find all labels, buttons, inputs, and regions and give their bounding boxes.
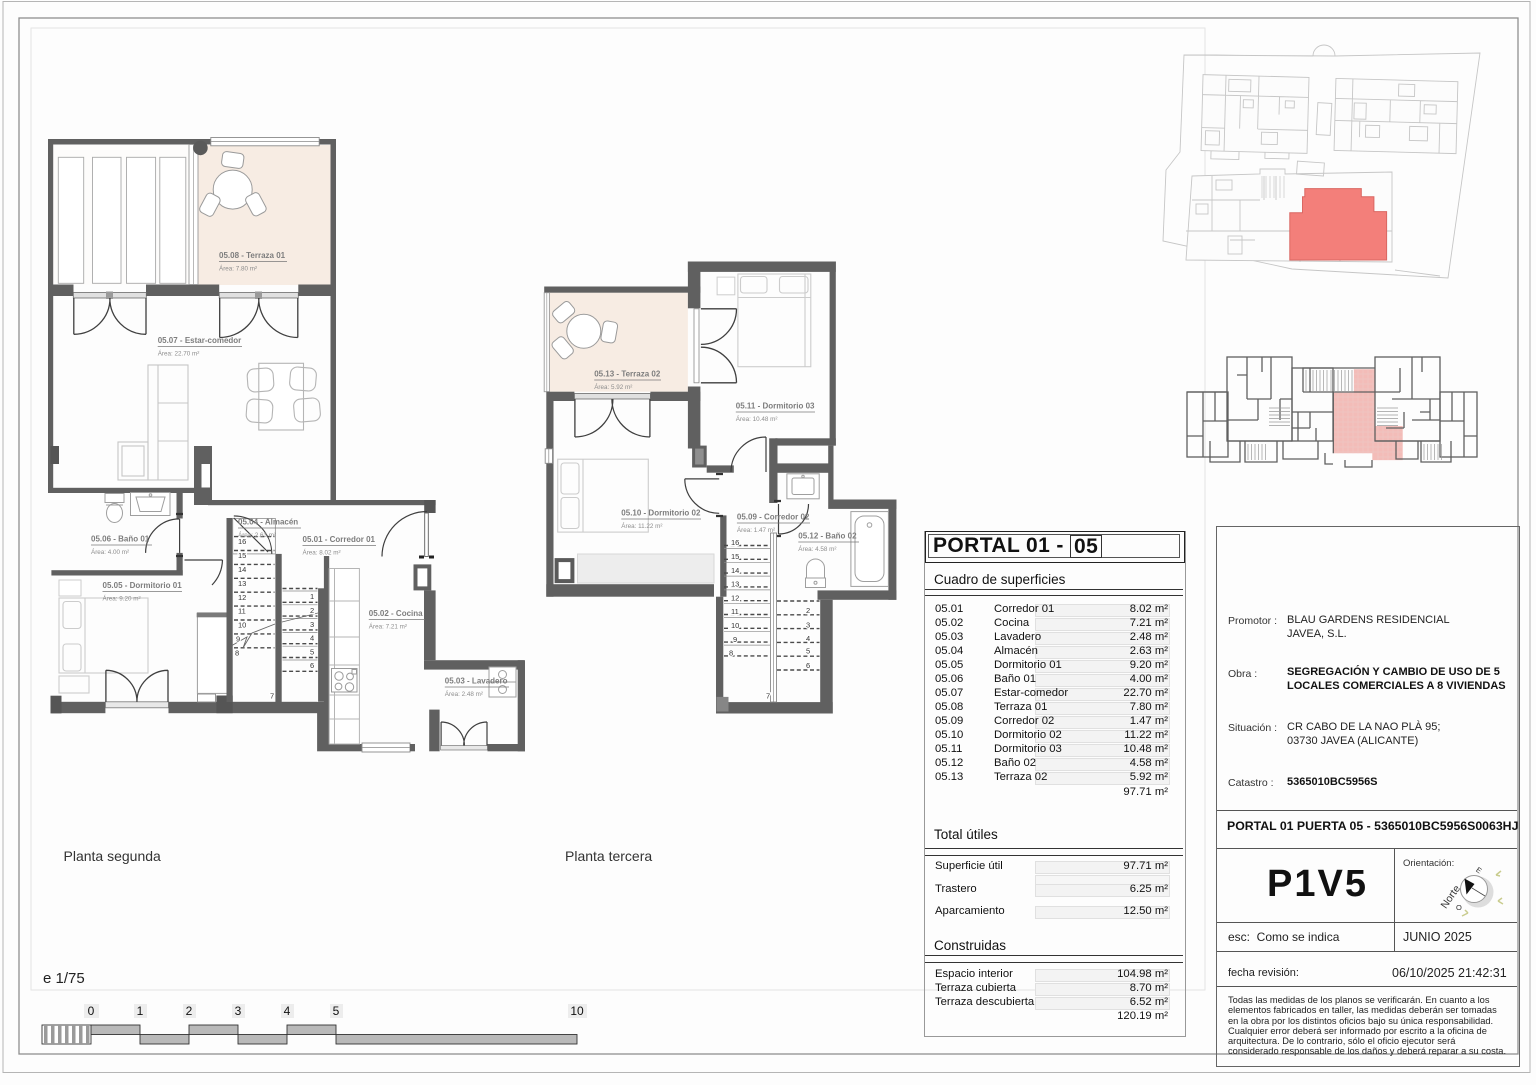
svg-text:13: 13 [731, 580, 739, 589]
svg-text:10: 10 [238, 621, 246, 630]
svg-text:05.08 - Terraza 01: 05.08 - Terraza 01 [219, 251, 286, 260]
svg-text:7: 7 [766, 691, 770, 700]
svg-text:Área: 7.21 m²: Área: 7.21 m² [369, 622, 407, 631]
svg-text:Área: 5.92 m²: Área: 5.92 m² [594, 382, 632, 391]
svg-text:2: 2 [186, 1004, 193, 1018]
svg-text:O: O [1456, 903, 1462, 912]
svg-text:5: 5 [806, 647, 810, 656]
svg-text:Área: 10.48 m²: Área: 10.48 m² [736, 414, 778, 423]
svg-text:3: 3 [806, 620, 810, 629]
svg-text:13: 13 [238, 579, 246, 588]
svg-text:Área: 22.70 m²: Área: 22.70 m² [158, 349, 200, 358]
svg-text:12: 12 [731, 593, 739, 602]
svg-text:8: 8 [235, 649, 239, 658]
svg-text:0: 0 [88, 1004, 95, 1018]
svg-text:05.04 - Almacén: 05.04 - Almacén [238, 518, 298, 527]
svg-text:9: 9 [733, 635, 737, 644]
svg-text:05.13 - Terraza 02: 05.13 - Terraza 02 [594, 370, 661, 379]
svg-text:Área: 2.63 m²: Área: 2.63 m² [238, 530, 276, 539]
svg-text:05.10 - Dormitorio 02: 05.10 - Dormitorio 02 [621, 509, 701, 518]
svg-text:Área: 2.48 m²: Área: 2.48 m² [445, 689, 483, 698]
svg-text:05.12 - Baño 02: 05.12 - Baño 02 [798, 532, 857, 541]
svg-text:3: 3 [235, 1004, 242, 1018]
svg-text:11: 11 [731, 607, 739, 616]
svg-text:10: 10 [731, 621, 739, 630]
svg-text:4: 4 [284, 1004, 291, 1018]
svg-text:2: 2 [310, 606, 314, 615]
svg-text:11: 11 [238, 607, 246, 616]
svg-text:15: 15 [731, 552, 739, 561]
svg-text:5: 5 [310, 647, 314, 656]
svg-text:05.09 - Corredor 02: 05.09 - Corredor 02 [737, 513, 810, 522]
svg-text:4: 4 [310, 634, 314, 643]
svg-text:16: 16 [731, 538, 739, 547]
svg-text:Área: 11.22 m²: Área: 11.22 m² [621, 521, 662, 530]
svg-text:14: 14 [238, 565, 246, 574]
svg-text:5: 5 [333, 1004, 340, 1018]
svg-text:1: 1 [137, 1004, 144, 1018]
svg-text:10: 10 [570, 1004, 584, 1018]
svg-text:05.03 - Lavadero: 05.03 - Lavadero [445, 677, 508, 686]
svg-text:6: 6 [806, 661, 810, 670]
svg-text:e 1/75: e 1/75 [43, 970, 85, 987]
svg-text:Área: 4.58 m²: Área: 4.58 m² [798, 544, 836, 553]
svg-text:E: E [1474, 865, 1483, 875]
svg-text:1: 1 [310, 592, 314, 601]
svg-text:Área: 4.00 m²: Área: 4.00 m² [91, 547, 129, 556]
svg-text:2: 2 [806, 606, 810, 615]
svg-text:8: 8 [729, 649, 733, 658]
svg-text:05.11 - Dormitorio 03: 05.11 - Dormitorio 03 [736, 402, 815, 411]
svg-text:Área: 1.47 m²: Área: 1.47 m² [737, 525, 775, 534]
svg-text:Área: 9.20 m²: Área: 9.20 m² [103, 594, 141, 603]
svg-text:4: 4 [806, 634, 810, 643]
svg-text:05.06 - Baño 01: 05.06 - Baño 01 [91, 535, 150, 544]
svg-text:05.05 - Dormitorio 01: 05.05 - Dormitorio 01 [103, 581, 183, 590]
svg-text:Planta tercera: Planta tercera [565, 848, 652, 864]
svg-text:15: 15 [238, 551, 246, 560]
svg-text:12: 12 [238, 593, 246, 602]
svg-text:Planta segunda: Planta segunda [64, 848, 162, 864]
svg-text:Área: 7.80 m²: Área: 7.80 m² [219, 264, 257, 273]
svg-text:05.02 - Cocina: 05.02 - Cocina [369, 609, 423, 618]
svg-text:6: 6 [310, 661, 314, 670]
svg-text:7: 7 [270, 692, 274, 701]
svg-text:3: 3 [310, 620, 314, 629]
svg-text:05.07 - Estar-comedor: 05.07 - Estar-comedor [158, 336, 242, 345]
svg-text:05.01 - Corredor 01: 05.01 - Corredor 01 [303, 535, 376, 544]
svg-text:Área: 8.02 m²: Área: 8.02 m² [303, 548, 341, 557]
svg-text:9: 9 [236, 635, 240, 644]
svg-text:14: 14 [731, 566, 739, 575]
